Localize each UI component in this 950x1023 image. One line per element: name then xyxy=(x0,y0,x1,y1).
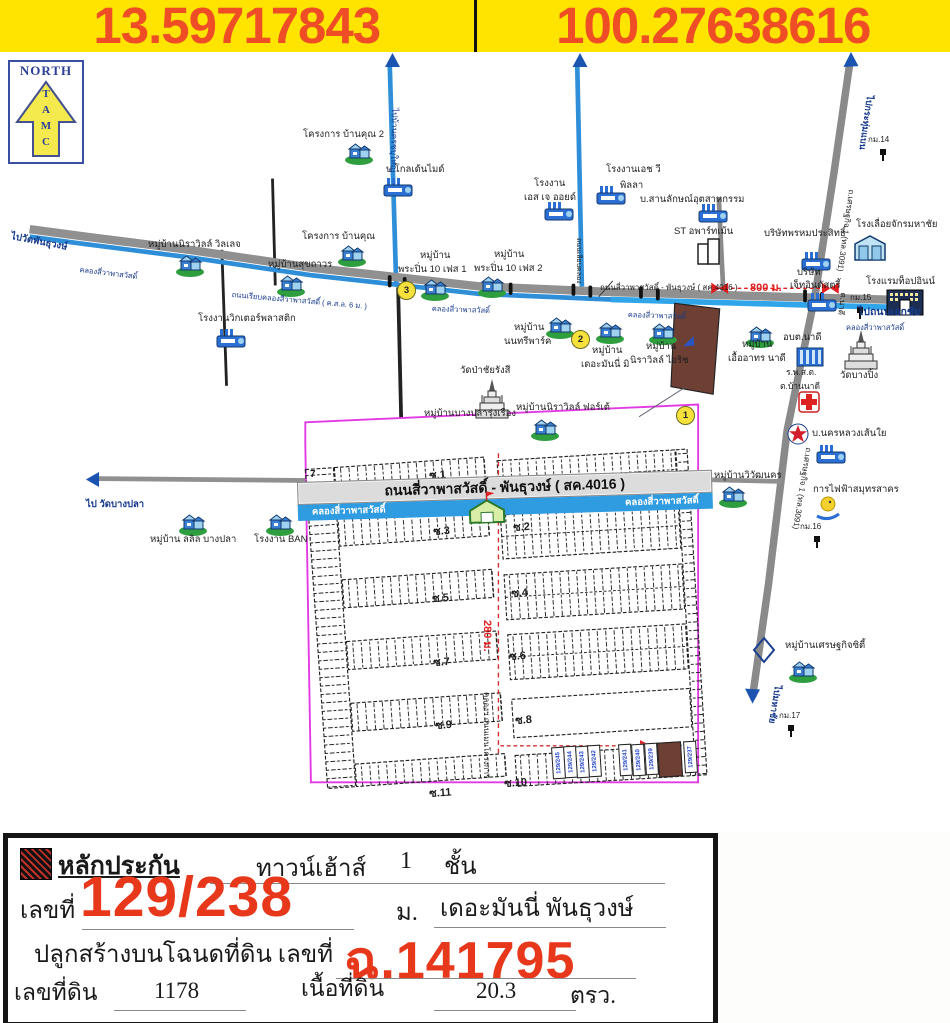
map-label: ถนนเลียบคลอง xyxy=(575,238,582,284)
house-icon xyxy=(175,253,205,282)
map-label: หมู่บ้านสุขถาวร xyxy=(268,260,332,270)
map-label: กม.17 xyxy=(779,712,800,720)
rule-line xyxy=(82,929,354,930)
canal-name-right: คลองสี่วาพาสวัสดิ์ xyxy=(625,493,699,511)
map-label: เอส เจ ออยด์ xyxy=(524,193,576,203)
floors-value: 1 xyxy=(400,848,412,875)
map-label: โครงการ บ้านคุณ xyxy=(302,232,375,242)
map-label: พระปิ่น 10 เฟส 2 xyxy=(474,264,543,274)
lot-number: 129/239 xyxy=(648,748,655,770)
map-label: บริษัท xyxy=(797,268,821,278)
map-label: ต.บ้านนาดี xyxy=(780,382,820,391)
map-label: หมู่บ้านวิวัฒนคร xyxy=(714,471,782,481)
house-icon xyxy=(530,417,560,446)
map-label: 7 xyxy=(310,470,316,481)
map-label: วัดบางปิ้ง xyxy=(840,371,878,381)
map-label: ซ.11 xyxy=(429,787,452,800)
longitude-value: 100.27638616 xyxy=(477,0,950,52)
map-label: กม.16 xyxy=(800,523,821,531)
map-label: 800 ม. xyxy=(750,283,782,295)
map-label: นิราวิลล์ ไอริช xyxy=(630,356,689,366)
collateral-info-box: หลักประกัน ทาวน์เฮ้าส์ 1 ชั้น เลขที่ 129… xyxy=(3,833,718,1023)
map-label: หมู่บ้าน xyxy=(646,342,676,352)
factory-icon xyxy=(215,327,249,356)
map-label: คลองฯ ถนนเมนโครงการ xyxy=(482,692,490,778)
factory-icon xyxy=(815,443,849,472)
map-label: ST อพาร์ทเม้น xyxy=(674,227,733,237)
map-label: ต.นาดี xyxy=(836,292,847,315)
map-label: หมู่บ้าน xyxy=(742,340,772,350)
lot-number: 129/240 xyxy=(635,749,642,771)
tamc-letter: T xyxy=(10,86,82,102)
map-label: โรงเลื่อยจักรมหาชัย xyxy=(856,220,937,230)
land-area-value: 20.3 xyxy=(476,978,516,1004)
map-label: ซ.4 xyxy=(511,588,528,601)
map-label: วัดป่าชัยรังสี xyxy=(460,366,510,376)
apartment-icon xyxy=(696,236,722,271)
map-label: โรงงานวิกเตอร์พลาสติก xyxy=(198,314,296,324)
house-icon xyxy=(477,274,507,303)
house-icon xyxy=(420,277,450,306)
map-label: โครงการ บ้านคุณ 2 xyxy=(303,130,384,140)
map-label: พระปิ่น 10 เฟส 1 xyxy=(398,265,467,275)
map-label: ซ.2 xyxy=(513,522,530,535)
map-label: 280 ม. xyxy=(480,620,492,652)
tamc-letter: C xyxy=(10,134,82,150)
kmpost-icon xyxy=(786,724,796,743)
star-icon xyxy=(787,423,809,450)
factory-icon xyxy=(806,291,840,320)
map-label: เจ็ทอินดัสตรี้ xyxy=(790,281,841,291)
factory-icon xyxy=(382,176,416,205)
factory-icon xyxy=(543,200,577,229)
land-no-value: 1178 xyxy=(154,978,199,1004)
lot-number: 129/242 xyxy=(591,750,598,772)
collateral-hatch-swatch xyxy=(20,848,52,880)
house-no-label: เลขที่ xyxy=(20,890,75,929)
clinic-icon xyxy=(797,390,821,419)
map-number-badge: 1 xyxy=(676,406,695,425)
lot-number: 129/241 xyxy=(622,749,629,771)
subject-lot-highlight xyxy=(657,741,683,777)
map-label: พิลลา xyxy=(620,181,643,191)
map-number-badge: 2 xyxy=(571,330,590,349)
rule-line xyxy=(434,1010,576,1011)
map-label: ซ.6 xyxy=(509,651,526,664)
map-label: ซ.9 xyxy=(435,720,452,733)
tamc-letter: A xyxy=(10,102,82,118)
lot-cell: 129/237 xyxy=(683,741,698,774)
map-label: ซ.10 xyxy=(504,777,528,790)
map-label: ไป วัดบางปลา xyxy=(86,500,144,510)
map-label: หมู่บ้านนิราวิลล์ ฟอร์เต้ xyxy=(516,403,610,413)
map-label: หมู่บ้าน ลลิล บางปลา xyxy=(150,535,236,545)
map-label: เดอะมันนี่ มิ xyxy=(581,360,629,370)
lot-number: 129/244 xyxy=(567,751,574,773)
map-label: หมู่บ้านนิราวิลล์ วิลเลจ xyxy=(148,240,241,250)
house-icon xyxy=(718,484,748,513)
map-label: ซ.5 xyxy=(432,593,449,606)
land-area-unit: ตรว. xyxy=(570,978,616,1014)
lot-number: 129/243 xyxy=(579,751,586,773)
map-label: หมู่บ้านเศรษฐกิจซิตี้ xyxy=(785,641,865,651)
house-icon xyxy=(344,141,374,170)
floors-unit: ชั้น xyxy=(444,846,477,885)
lot-number: 129/245 xyxy=(555,752,562,774)
map-label: คลองสี่วาพาสวัสดิ์ xyxy=(846,324,904,332)
map-label: บ.สานลักษณ์อุตสาหกรรม xyxy=(640,195,744,205)
map-label: ไปถนนเอกชัย xyxy=(858,307,920,318)
map-label: การไฟฟ้าสมุทรสาคร xyxy=(813,485,899,495)
built-on-deed-label: ปลูกสร้างบนโฉนดที่ดิน เลขที่ xyxy=(34,934,333,973)
latitude-value: 13.59717843 xyxy=(0,0,474,52)
house-no-value: 129/238 xyxy=(80,864,293,930)
map-label: นนทรีพาร์ค xyxy=(504,337,551,347)
map-label: ถนนสี่วาพาสวัสดิ์ - พันธุวงษ์ ( สค.4016 … xyxy=(600,284,738,292)
canal-name-left: คลองสี่วาพาสวัสดิ์ xyxy=(312,502,386,520)
map-label: บ.นครหลวงเส้นใย xyxy=(812,429,886,439)
kmpost-icon xyxy=(812,535,822,554)
tamc-letters: T A M C xyxy=(10,86,82,150)
land-no-label: เลขที่ดิน xyxy=(14,975,98,1011)
map-label: โรงงาน xyxy=(534,179,565,189)
land-area-label: เนื้อที่ดิน xyxy=(301,971,384,1007)
north-label: NORTH xyxy=(10,63,82,79)
tamc-letter: M xyxy=(10,118,82,134)
map-label: ร.พ.ส.ต. xyxy=(786,368,816,377)
map-area: NORTH T A M C ถนนสี่วาพาสวัสดิ์ - พันธุว… xyxy=(0,52,950,833)
compass-north-logo: NORTH T A M C xyxy=(8,60,84,164)
estate-gate-icon xyxy=(467,490,506,525)
drop-icon xyxy=(752,636,776,669)
lot-number: 129/237 xyxy=(687,746,694,768)
coordinate-banner: 13.59717843 100.27638616 xyxy=(0,0,950,52)
map-label: ซ.8 xyxy=(515,715,532,728)
map-number-badge: 3 xyxy=(397,281,416,300)
map-label: หมู่บ้าน xyxy=(514,323,544,333)
map-label: หมู่บ้าน xyxy=(592,346,622,356)
warehouse-icon xyxy=(853,234,887,267)
map-label: เอื้ออาทร นาดี xyxy=(728,354,786,364)
house-icon xyxy=(337,243,367,272)
map-label: โรงงาน BAN xyxy=(254,535,307,545)
map-label: บริษัทพรหมประสิทธิ์ xyxy=(764,229,846,239)
map-label: ซ.7 xyxy=(433,657,450,670)
lot-cell: 129/242 xyxy=(587,745,602,778)
map-label: ซ.3 xyxy=(433,526,450,539)
map-label: หมู่บ้าน xyxy=(494,250,524,260)
map-label: กม.14 xyxy=(868,136,889,144)
rule-line xyxy=(114,1010,246,1011)
scanned-map-page: 13.59717843 100.27638616 xyxy=(0,0,950,1023)
kmpost-icon xyxy=(878,148,888,167)
map-label: ไปบ้านครชบุใหญ่ xyxy=(389,108,399,172)
map-label: หมู่บ้านบางปลารุ่งเรือง xyxy=(424,409,516,419)
map-label: หมู่บ้าน xyxy=(420,251,450,261)
house-icon xyxy=(788,659,818,688)
map-label: โรงแรมท็อปอินน์ xyxy=(866,277,935,287)
map-label: กม.15 xyxy=(850,294,871,302)
map-label: อบต.นาดี xyxy=(783,333,822,343)
map-label: โรงงานเอช วี xyxy=(606,165,661,175)
